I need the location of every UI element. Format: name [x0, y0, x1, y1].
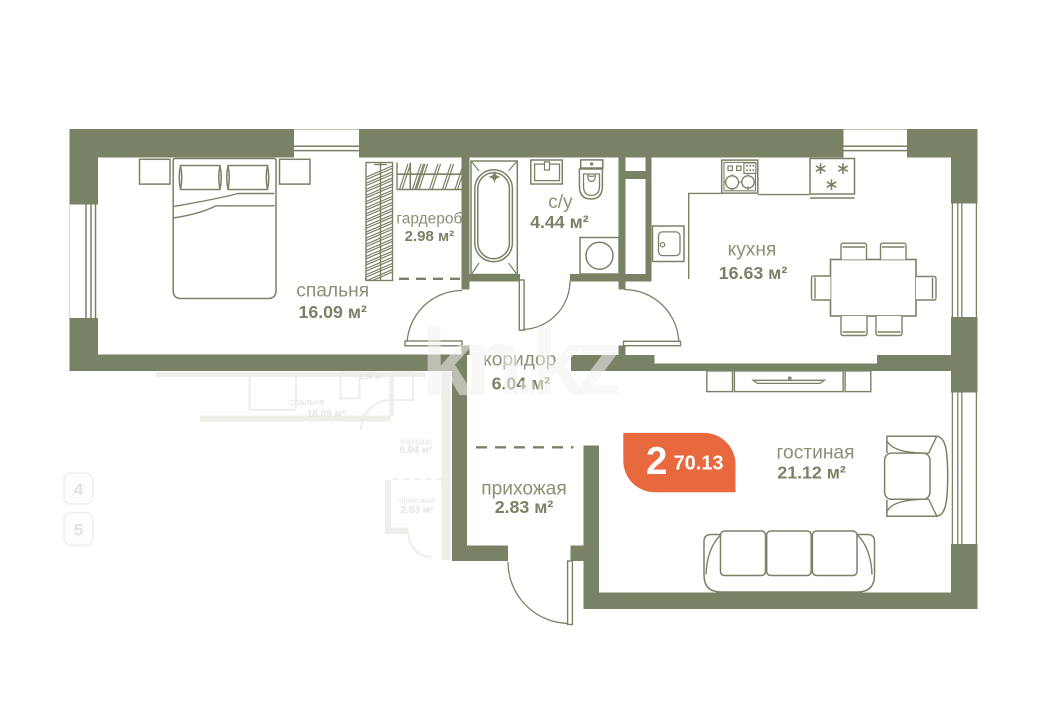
- svg-text:2.98 м²: 2.98 м²: [405, 228, 454, 245]
- svg-text:4: 4: [74, 480, 84, 499]
- svg-text:16.09 м²: 16.09 м²: [298, 302, 367, 322]
- svg-text:2.83 м²: 2.83 м²: [401, 505, 435, 516]
- svg-text:гардероб: гардероб: [396, 211, 462, 228]
- svg-text:4.44 м²: 4.44 м²: [530, 212, 589, 232]
- svg-text:16.63 м²: 16.63 м²: [719, 263, 788, 283]
- svg-text:5: 5: [74, 521, 83, 540]
- svg-text:коридор: коридор: [401, 437, 432, 446]
- svg-text:70.13: 70.13: [674, 453, 724, 475]
- svg-text:21.12 м²: 21.12 м²: [777, 463, 846, 483]
- svg-text:с/у: с/у: [548, 192, 573, 213]
- svg-text:2.83 м²: 2.83 м²: [495, 497, 554, 517]
- svg-text:2.98 м²: 2.98 м²: [359, 374, 383, 381]
- svg-text:гостиная: гостиная: [776, 443, 854, 464]
- svg-text:2: 2: [646, 440, 667, 483]
- svg-text:спальня: спальня: [296, 281, 369, 302]
- svg-text:кухня: кухня: [728, 240, 777, 261]
- svg-text:прихожая: прихожая: [399, 496, 435, 505]
- svg-text:спальня: спальня: [290, 397, 324, 407]
- svg-text:16.09 м²: 16.09 м²: [307, 409, 346, 420]
- svg-text:kn.kz: kn.kz: [421, 310, 620, 416]
- svg-text:6.04 м²: 6.04 м²: [400, 445, 434, 456]
